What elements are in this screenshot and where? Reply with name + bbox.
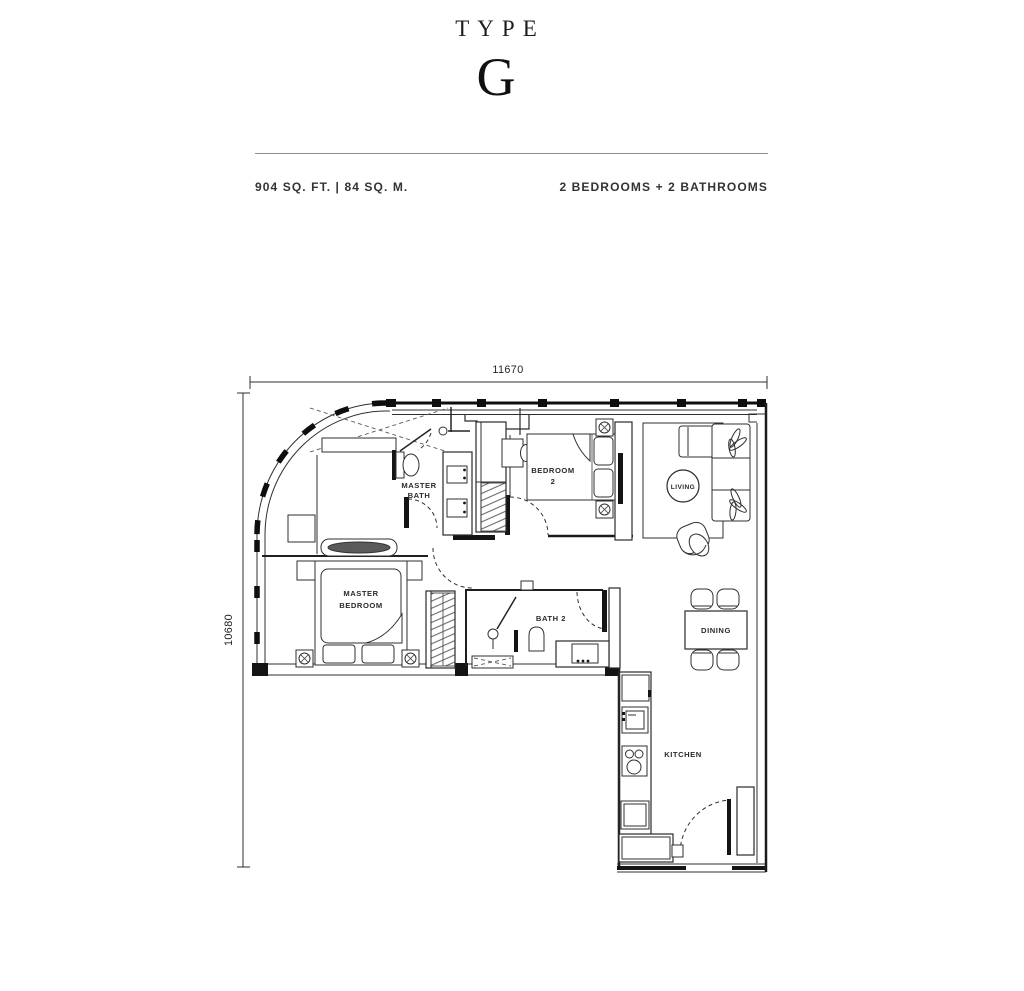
nightstand bbox=[297, 561, 315, 580]
room-kitchen: KITCHEN bbox=[619, 672, 754, 862]
label-kitchen: KITCHEN bbox=[664, 750, 702, 759]
room-living: LIVING bbox=[643, 423, 750, 560]
kitchen-cabinet bbox=[621, 801, 649, 829]
entrance-door-leaf bbox=[727, 799, 731, 855]
label-bedroom2-2: 2 bbox=[551, 477, 556, 486]
wall-bottom bbox=[617, 864, 766, 872]
downlight-icon bbox=[402, 650, 419, 667]
label-bedroom2-1: BEDROOM bbox=[531, 466, 575, 475]
room-master-bath: MASTER BATH bbox=[288, 408, 506, 556]
living-label-circle: LIVING bbox=[667, 470, 699, 502]
dimension-left-label: 10680 bbox=[223, 614, 235, 646]
bathtub bbox=[321, 539, 397, 556]
wall-bedroom2-living bbox=[615, 422, 632, 540]
door-stop bbox=[672, 845, 683, 857]
wall-bath2-dining bbox=[609, 588, 620, 668]
label-bath-2: BATH 2 bbox=[536, 614, 566, 623]
window-seat bbox=[288, 515, 315, 542]
label-dining: DINING bbox=[701, 626, 731, 635]
label-master-bedroom-1: MASTER bbox=[343, 589, 378, 598]
fridge bbox=[622, 675, 651, 701]
downlight-icon bbox=[296, 650, 313, 667]
kitchen-counter-bottom bbox=[619, 834, 683, 862]
shower-bath2 bbox=[488, 597, 518, 652]
bed-master bbox=[315, 561, 407, 665]
shower-bench bbox=[322, 438, 396, 452]
curved-window bbox=[257, 403, 386, 535]
downlight-icon bbox=[596, 501, 613, 518]
room-bath-2: BATH 2 bbox=[472, 597, 609, 668]
bath2-door-leaf bbox=[602, 590, 607, 632]
masterbath-door-leaf bbox=[404, 497, 409, 528]
vanity-double bbox=[443, 452, 472, 535]
label-master-bath-2: BATH bbox=[408, 491, 431, 500]
room-bedroom-2: BEDROOM 2 bbox=[502, 419, 615, 518]
floor-vent bbox=[472, 656, 513, 668]
room-dining: DINING bbox=[685, 589, 747, 670]
floorplan-page: TYPE G 904 SQ. FT. | 84 SQ. M. 2 BEDROOM… bbox=[0, 0, 1024, 991]
label-living: LIVING bbox=[671, 484, 695, 491]
vanity-bath2 bbox=[556, 641, 609, 667]
dimension-top-label: 11670 bbox=[492, 364, 523, 376]
pillow bbox=[594, 437, 613, 465]
pillow bbox=[323, 645, 355, 663]
wardrobe-master bbox=[426, 591, 455, 668]
toilet-bath2 bbox=[529, 627, 544, 651]
armchair bbox=[674, 519, 713, 559]
label-master-bath-1: MASTER bbox=[401, 481, 436, 490]
tv-panel bbox=[618, 453, 623, 504]
kitchen-sink bbox=[622, 707, 648, 733]
pillow bbox=[362, 645, 394, 663]
room-master-bedroom: MASTER BEDROOM bbox=[296, 561, 455, 668]
floorplan-drawing: 11670 10680 bbox=[0, 0, 1024, 991]
label-master-bedroom-2: BEDROOM bbox=[339, 601, 383, 610]
pillow bbox=[594, 469, 613, 497]
entrance-door bbox=[727, 787, 754, 855]
dimension-top: 11670 bbox=[250, 364, 767, 389]
hob bbox=[622, 746, 647, 776]
toilet-master bbox=[392, 450, 419, 480]
downlight-icon bbox=[596, 419, 613, 436]
dimension-left: 10680 bbox=[223, 393, 250, 867]
